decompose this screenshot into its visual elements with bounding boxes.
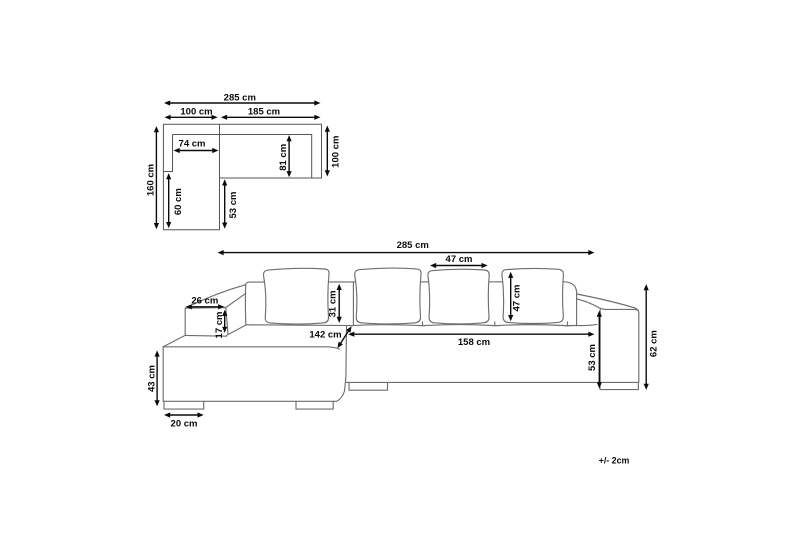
svg-text:285 cm: 285 cm <box>224 92 256 103</box>
svg-text:26 cm: 26 cm <box>191 295 218 306</box>
svg-text:20 cm: 20 cm <box>171 419 198 430</box>
svg-text:17 cm: 17 cm <box>214 312 225 339</box>
svg-text:158 cm: 158 cm <box>458 337 490 348</box>
svg-text:62 cm: 62 cm <box>648 330 659 357</box>
svg-text:285 cm: 285 cm <box>397 240 429 251</box>
svg-text:31 cm: 31 cm <box>328 290 339 317</box>
svg-text:81 cm: 81 cm <box>278 144 289 171</box>
svg-text:+/- 2cm: +/- 2cm <box>599 455 630 465</box>
svg-text:47 cm: 47 cm <box>512 285 523 312</box>
svg-text:53 cm: 53 cm <box>587 344 598 371</box>
svg-text:160 cm: 160 cm <box>145 164 156 196</box>
svg-text:43 cm: 43 cm <box>147 365 158 392</box>
svg-text:60 cm: 60 cm <box>173 188 184 215</box>
svg-text:142 cm: 142 cm <box>309 330 341 341</box>
svg-text:53 cm: 53 cm <box>228 192 239 219</box>
svg-text:100 cm: 100 cm <box>180 107 212 118</box>
svg-text:185 cm: 185 cm <box>248 107 280 118</box>
svg-text:74 cm: 74 cm <box>179 139 206 150</box>
svg-text:100 cm: 100 cm <box>330 136 341 168</box>
svg-text:47 cm: 47 cm <box>446 254 473 265</box>
